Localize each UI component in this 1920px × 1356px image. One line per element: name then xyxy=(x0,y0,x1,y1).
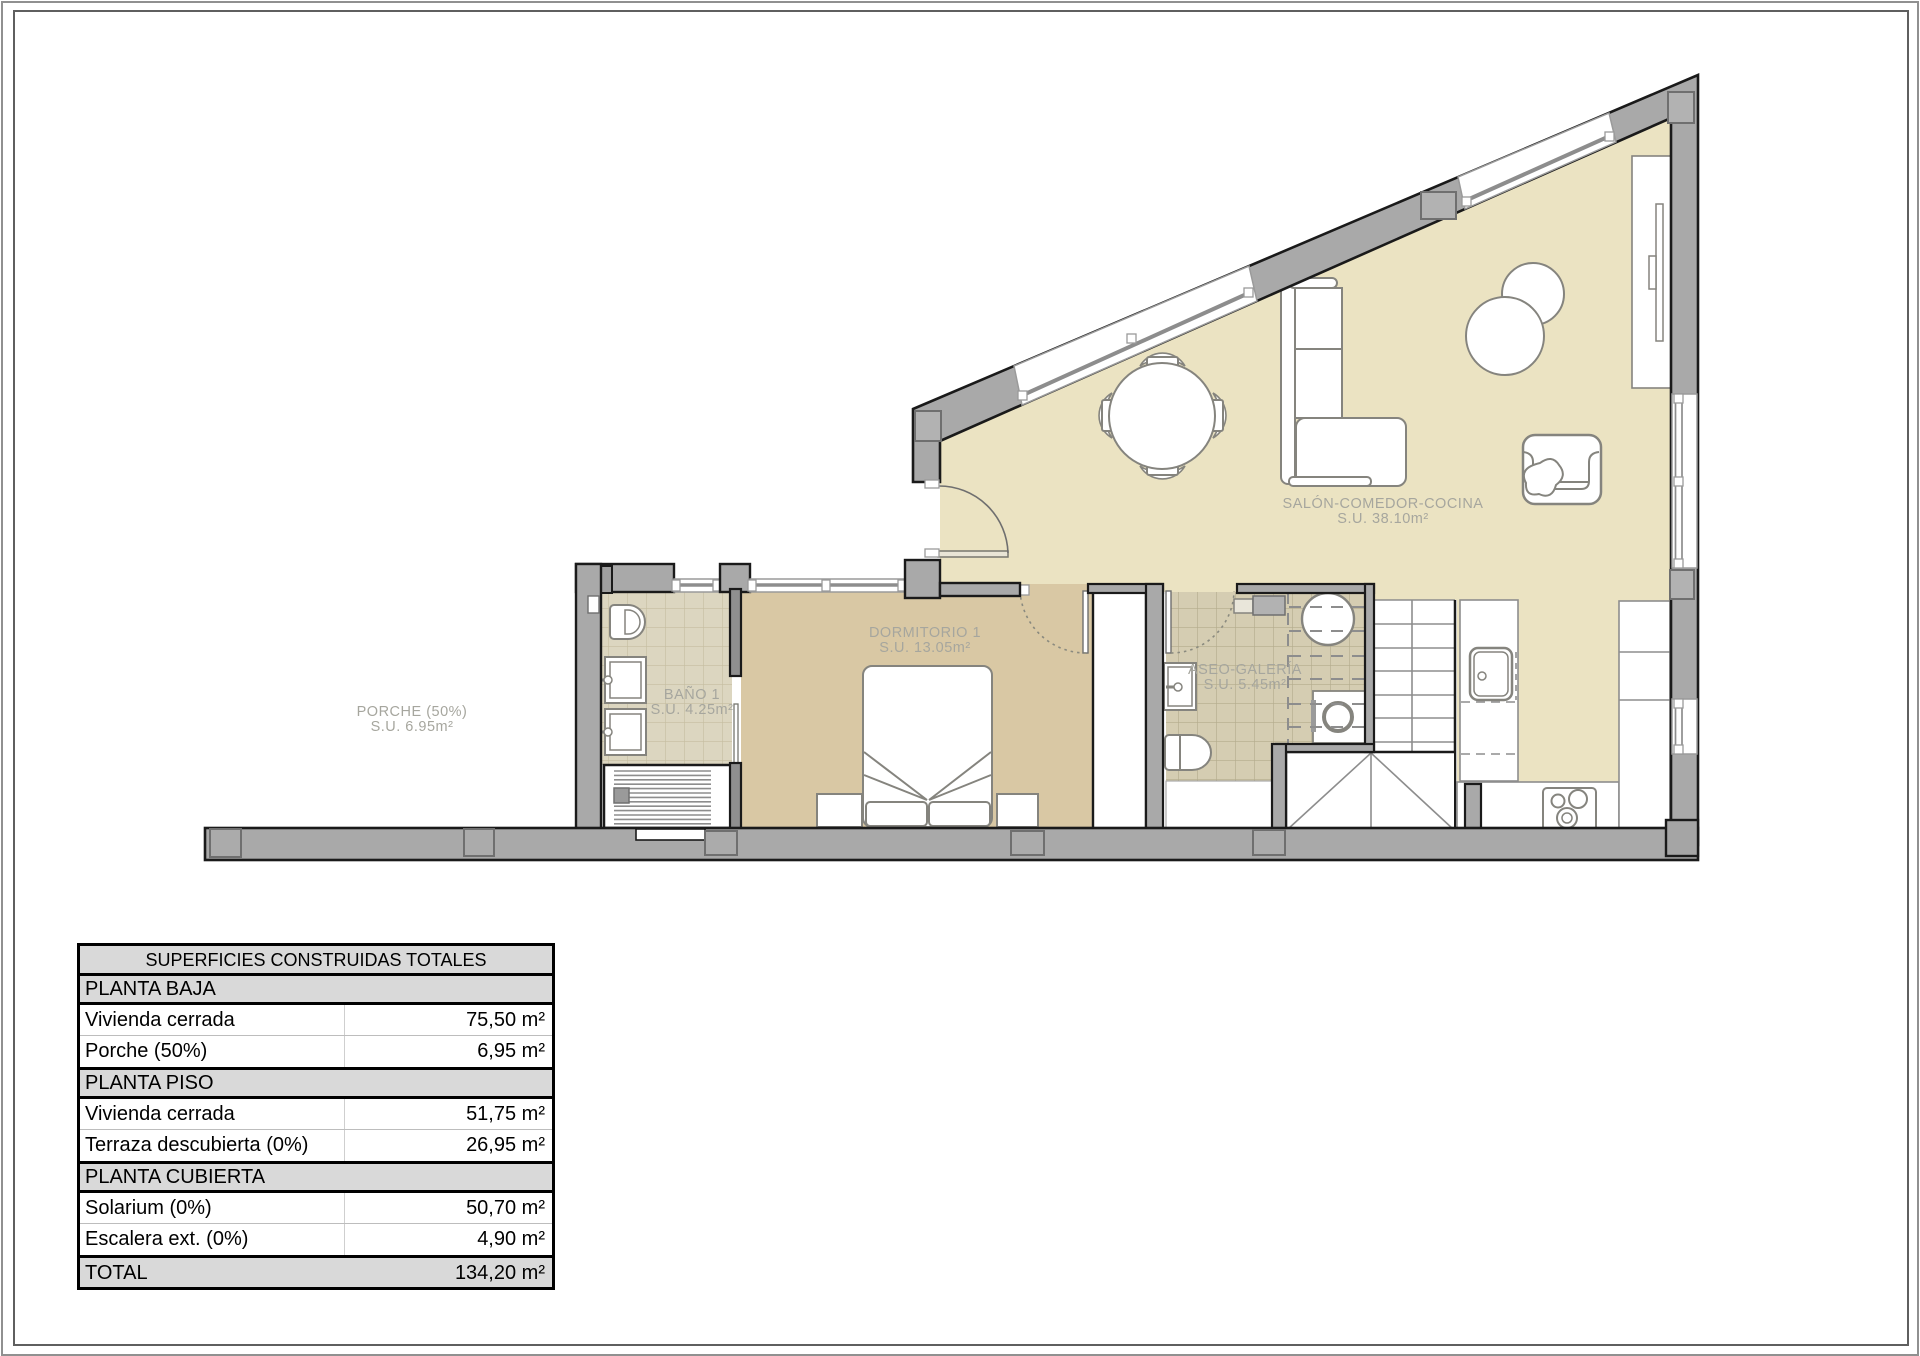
svg-text:DORMITORIO 1: DORMITORIO 1 xyxy=(869,625,981,641)
svg-text:PORCHE (50%): PORCHE (50%) xyxy=(357,704,468,720)
svg-text:SALÓN-COMEDOR-COCINA: SALÓN-COMEDOR-COCINA xyxy=(1283,495,1484,512)
svg-text:ASEO-GALERÍA: ASEO-GALERÍA xyxy=(1188,661,1302,678)
svg-text:S.U. 5.45m²: S.U. 5.45m² xyxy=(1204,677,1287,693)
svg-text:S.U. 6.95m²: S.U. 6.95m² xyxy=(371,719,454,735)
svg-text:S.U. 38.10m²: S.U. 38.10m² xyxy=(1337,511,1428,527)
svg-text:S.U. 4.25m²: S.U. 4.25m² xyxy=(651,702,734,718)
svg-text:S.U. 13.05m²: S.U. 13.05m² xyxy=(879,640,970,656)
svg-text:BAÑO 1: BAÑO 1 xyxy=(664,686,720,703)
